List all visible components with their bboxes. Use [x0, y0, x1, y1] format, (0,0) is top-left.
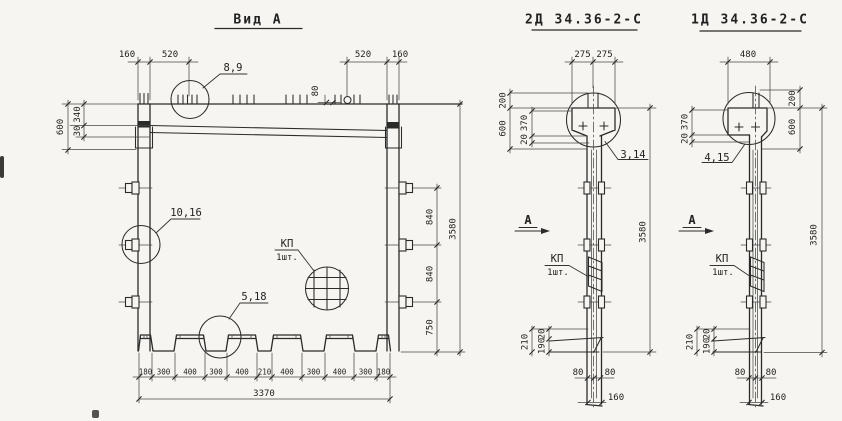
rebar-ticks: [140, 94, 397, 105]
callout-label: 8,9: [224, 62, 243, 74]
mesh-qty: 1шт.: [547, 268, 569, 278]
beam-band: [150, 126, 387, 138]
anchor-bolts: [741, 182, 771, 308]
dim-label: 160: [770, 393, 786, 403]
dim-label: 80: [605, 368, 616, 378]
dim-label: 300: [307, 368, 321, 377]
section-label: А: [524, 213, 532, 227]
view-title: 1Д 34.36-2-С: [691, 13, 809, 28]
mesh-label: КП: [716, 253, 729, 265]
dim-label: 3580: [810, 224, 820, 246]
joint-notch: [138, 121, 150, 128]
dim-label: 200: [788, 90, 798, 106]
dim-ticks: [507, 59, 652, 405]
dim-label: 20: [520, 134, 530, 145]
dim-label: 400: [183, 368, 197, 377]
mesh-label: КП: [281, 238, 294, 250]
dim-label: 200: [499, 92, 509, 108]
dim-label: 80: [735, 368, 746, 378]
dim-label: 400: [280, 368, 294, 377]
mesh-qty: 1шт.: [276, 253, 298, 263]
callout-label: 10,16: [170, 207, 202, 219]
callout-label: 5,18: [241, 291, 266, 303]
detail-circle-8-9: [171, 81, 209, 119]
dim-label: 80: [766, 368, 777, 378]
dim-label: 30: [73, 126, 83, 137]
section-arrow: А: [679, 213, 714, 234]
dim-label: 600: [788, 119, 798, 135]
dim-label: 20: [538, 329, 548, 340]
rebar-ends: [753, 93, 759, 108]
dim-label: 160: [608, 393, 624, 403]
dim-ticks: [65, 59, 462, 401]
mesh-qty: 1шт.: [712, 268, 734, 278]
dim-label: 20: [681, 133, 691, 144]
dim-label: 400: [333, 368, 347, 377]
scan-artifact: [92, 410, 99, 418]
dim-label: 300: [209, 368, 223, 377]
dim-label-total: 3370: [253, 389, 275, 399]
base-level-lines: [549, 338, 603, 353]
callout-label: 4,15: [704, 152, 729, 164]
view-title: Вид А: [233, 13, 282, 28]
view-title: 2Д 34.36-2-С: [525, 13, 643, 28]
dim-label: 3580: [449, 218, 459, 240]
dim-label: 180: [139, 368, 153, 377]
dim-label: 210: [686, 334, 696, 350]
corrugated-bottom-edge: [139, 335, 391, 351]
anchor-bolts: [578, 182, 611, 308]
leader-lines: [156, 74, 314, 319]
dim-label: 80: [573, 368, 584, 378]
dim-label: 160: [392, 50, 408, 60]
view-col-1d: 1Д 34.36-2-С: [679, 13, 827, 411]
scan-artifact: [0, 156, 4, 178]
dim-label: 370: [681, 114, 691, 130]
dim-label: 275: [596, 50, 612, 60]
blueprint-canvas: Вид А: [0, 0, 842, 421]
dim-label: 190: [538, 338, 548, 354]
dim-label: 600: [56, 119, 66, 135]
dim-label: 275: [574, 50, 590, 60]
detail-circle-5-18: [199, 316, 241, 358]
dim-label: 480: [740, 50, 756, 60]
joint-notch: [387, 122, 399, 129]
section-label: А: [688, 213, 696, 227]
mesh-symbol: [306, 267, 349, 310]
dim-label: 190: [703, 338, 713, 354]
mesh-label: КП: [551, 253, 564, 265]
callout-label: 3,14: [620, 149, 645, 161]
dim-label: 20: [703, 329, 713, 340]
dim-label: 600: [499, 120, 509, 136]
dim-label: 160: [119, 50, 135, 60]
dim-label: 840: [426, 209, 436, 225]
view-col-2d: 2Д 34.36-2-С: [499, 13, 657, 411]
view-vid-a: Вид А: [56, 13, 465, 404]
contact-plate: [589, 257, 603, 292]
dim-label: 3580: [639, 221, 649, 243]
dim-label: 210: [258, 368, 272, 377]
dim-label: 340: [73, 106, 83, 122]
dim-label: 300: [157, 368, 171, 377]
blueprint-sheet: Вид А: [0, 0, 842, 421]
dim-label: 80: [311, 86, 321, 97]
dim-label: 520: [162, 50, 178, 60]
lifting-loop-icon: [344, 97, 351, 104]
rebar-ends: [588, 93, 598, 108]
dim-label: 210: [521, 334, 531, 350]
dim-label: 750: [426, 319, 436, 335]
dim-label: 370: [520, 115, 530, 131]
panel-outline: [62, 104, 462, 351]
dim-label: 400: [235, 368, 249, 377]
dim-label: 180: [377, 368, 391, 377]
dim-label: 520: [355, 50, 371, 60]
dim-label: 840: [426, 266, 436, 282]
dim-label: 300: [359, 368, 373, 377]
section-arrow: А: [515, 213, 550, 234]
